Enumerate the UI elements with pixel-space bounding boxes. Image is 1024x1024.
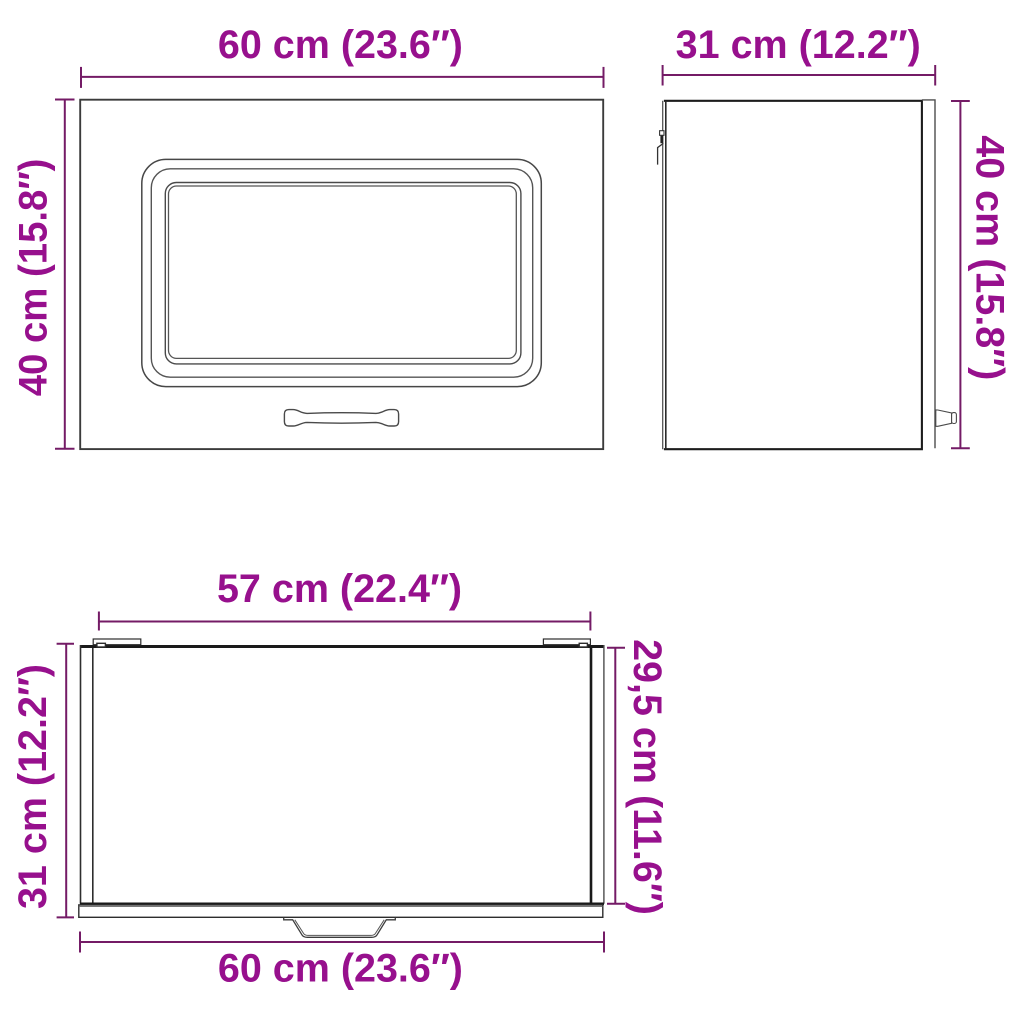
svg-text:31 cm (12.2″): 31 cm (12.2″) xyxy=(11,664,55,909)
svg-text:60 cm (23.6″): 60 cm (23.6″) xyxy=(218,23,463,67)
svg-text:57 cm (22.4″): 57 cm (22.4″) xyxy=(217,567,462,611)
svg-text:31 cm (12.2″): 31 cm (12.2″) xyxy=(676,23,921,67)
svg-text:40 cm (15.8″): 40 cm (15.8″) xyxy=(12,159,56,397)
svg-text:40 cm (15.8″): 40 cm (15.8″) xyxy=(968,135,1012,380)
svg-text:60 cm (23.6″): 60 cm (23.6″) xyxy=(218,946,463,990)
svg-text:29,5 cm (11.6″): 29,5 cm (11.6″) xyxy=(625,639,669,915)
